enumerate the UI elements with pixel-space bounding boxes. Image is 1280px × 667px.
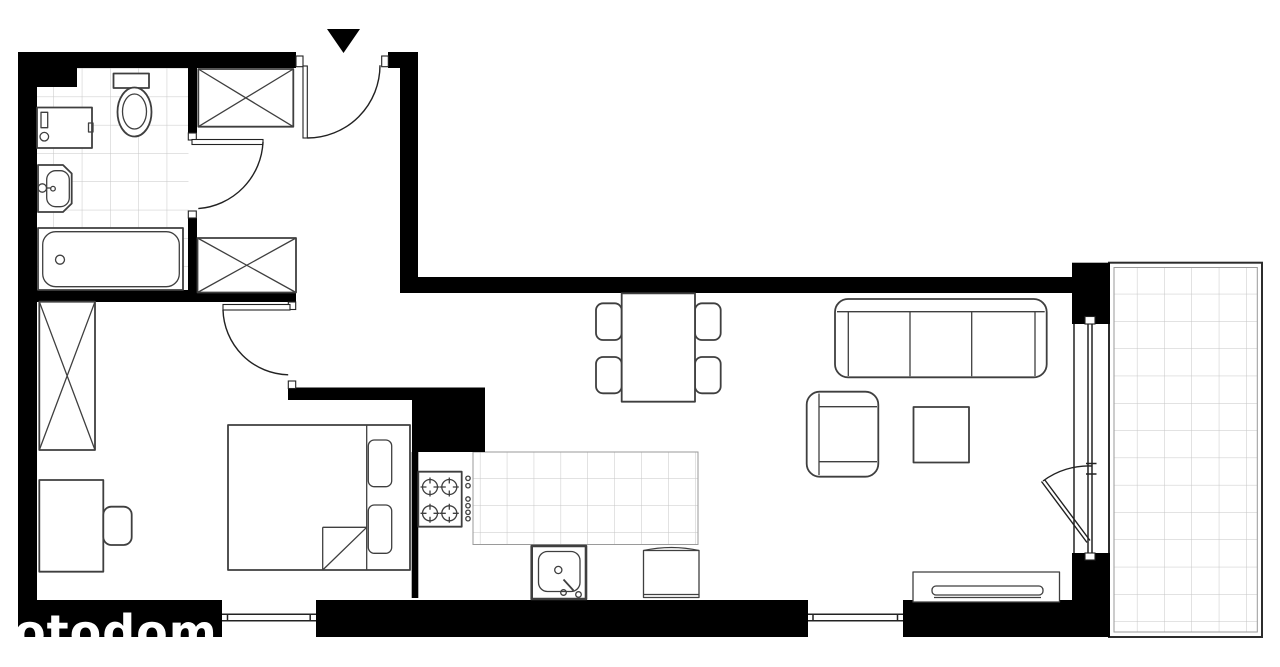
sofa [835,299,1047,377]
wall-bathroom-right-lower [188,218,197,296]
balcony [1109,263,1262,637]
bed-pillow-1 [368,440,391,487]
armchair [807,392,879,477]
balcony-tiled-floor [1114,268,1257,633]
sofa-outline [835,299,1047,377]
wall-left [18,52,37,637]
glazed-wall-frame-bottom [1085,553,1095,560]
wall-bathroom-right-upper [188,68,197,133]
floor-plan-drawing: otodom [0,0,1280,667]
tv-sideboard [913,572,1060,602]
dining-chair [695,303,721,340]
dining-chair [596,357,622,393]
coffee-table [914,407,970,463]
armchair-outline [807,392,879,477]
bathroom-door-leaf [192,140,263,145]
stove [418,472,470,527]
living-window-opening [808,600,903,637]
fridge-body [644,551,700,598]
toilet-tank [114,74,150,89]
desk [39,480,103,572]
bathroom-door-frame-bottom [188,211,196,218]
bedroom-window [222,600,316,637]
wall-living-top [400,277,1073,293]
kitchen-tiled-counter [473,452,698,545]
watermark: otodom [14,605,218,659]
bathtub [38,228,183,290]
wall-balcony-bottom-block [1072,553,1110,637]
wall-kitchen-block [412,393,485,452]
tv-screen [932,586,1043,595]
floor-plan-canvas: otodom [0,0,1280,667]
desk-chair [103,507,131,545]
wardrobe-hall-top [198,69,293,127]
double-bed [228,425,410,570]
bathtub-outer [38,228,183,290]
dining-table [622,293,695,401]
dining-chair [695,357,721,393]
bedroom-door-leaf [223,305,290,311]
bed-pillow-2 [368,505,391,553]
living-room-window [808,600,903,637]
wall-bedroom-kitchen-divider [412,452,419,598]
wardrobe-hall-bottom [198,238,297,293]
washing-machine [37,108,93,149]
dining-chair [596,303,622,340]
wall-bottom-right [903,600,1073,637]
bedroom-window-opening [222,600,316,637]
entrance-frame-left [296,56,303,67]
wall-bottom-middle [316,600,808,637]
entrance-frame-right [382,56,389,67]
bathroom-door-frame-top [188,133,196,140]
wall-balcony-top-block [1072,263,1110,324]
washbasin [38,165,72,212]
kitchen-sink [532,546,586,599]
wardrobe-bedroom [39,302,95,450]
fridge-cabinet [644,548,700,598]
glazed-wall-frame-top [1085,317,1095,325]
bedroom-door-frame-bottom [288,381,295,389]
entrance-door-leaf [303,66,307,138]
wall-hall-right [400,52,418,293]
